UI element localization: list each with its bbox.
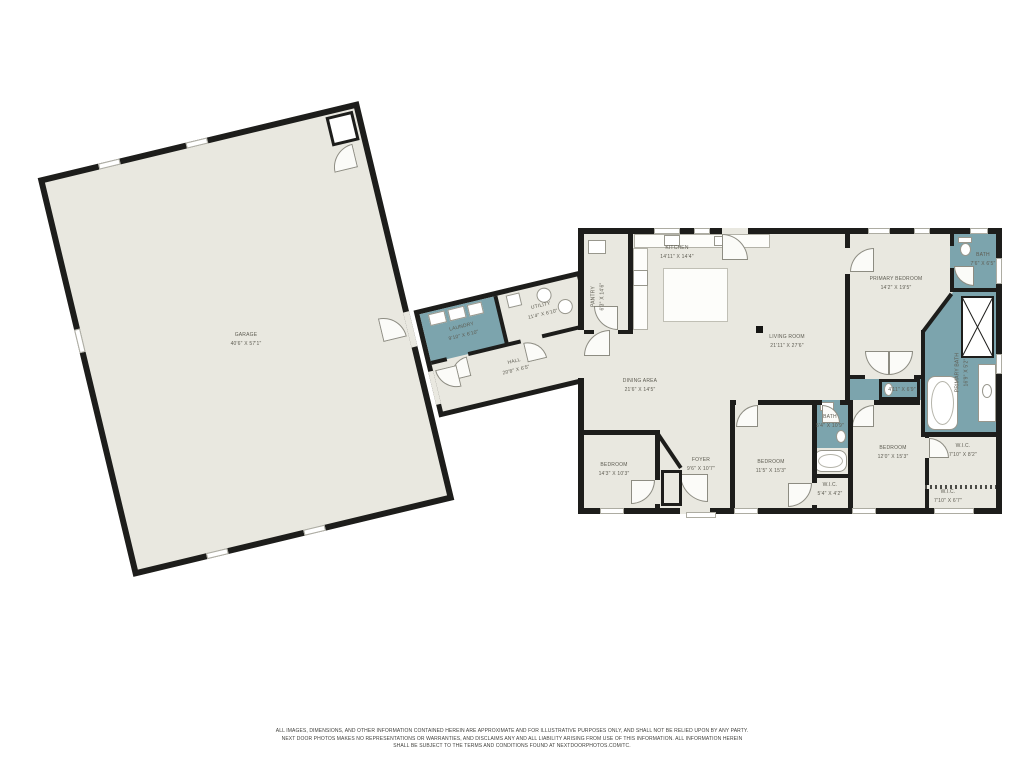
room-name: KITCHEN	[637, 244, 717, 253]
window	[914, 228, 930, 234]
garage-corner-alcove	[325, 111, 359, 147]
door-arc	[736, 405, 758, 427]
room-dims: 4'11" X 6'9"	[872, 386, 932, 395]
room-label-wic-primary: W.I.C. 7'10" X 8'2"	[923, 442, 1003, 459]
room-label-wic-small: W.I.C. 7'10" X 6'7"	[908, 488, 988, 505]
door-arc	[378, 313, 407, 342]
door-arc	[329, 144, 358, 173]
room-label-garage: GARAGE 40'6" X 57'1"	[196, 331, 296, 348]
door-arc	[865, 351, 889, 375]
wall	[845, 274, 850, 400]
room-label-bath-hall: BATH 5'4" X 10'9"	[790, 413, 870, 430]
cooktop-icon	[633, 270, 648, 286]
pantry-shelf-icon	[588, 240, 606, 254]
room-name: GARAGE	[196, 331, 296, 340]
room-name: FOYER	[661, 456, 741, 465]
room-dims: 6'3" X 14'6"	[598, 262, 607, 332]
room-dims: 12'0" X 15'3"	[853, 453, 933, 462]
wall	[921, 432, 996, 437]
room-label-bedroom-right: BEDROOM 12'0" X 15'3"	[853, 444, 933, 461]
window	[694, 228, 710, 234]
room-dims: 14'11" X 14'4"	[637, 253, 717, 262]
window	[654, 228, 680, 234]
room-dims: 21'11" X 27'6"	[747, 342, 827, 351]
window	[934, 508, 974, 514]
wall	[628, 234, 633, 332]
room-name: BATH	[790, 413, 870, 422]
door-arc	[631, 480, 655, 504]
wall	[812, 505, 817, 508]
room-label-hall: HALL 20'8" X 6'5"	[484, 351, 546, 382]
foyer-closet	[661, 470, 682, 506]
room-name: LIVING ROOM	[747, 333, 827, 342]
room-name: PRIMARY BEDROOM	[846, 275, 946, 284]
door-opening	[578, 330, 584, 378]
room-name: W.I.C.	[923, 442, 1003, 451]
room-name: PRIMARY BATH	[954, 333, 963, 413]
room-label-pantry: PANTRY 6'3" X 14'6"	[590, 262, 607, 332]
wall	[812, 474, 853, 478]
room-name: BEDROOM	[574, 461, 654, 470]
room-name: DINING AREA	[600, 377, 680, 386]
toilet-icon	[836, 430, 846, 443]
disclaimer-text: ALL IMAGES, DIMENSIONS, AND OTHER INFORM…	[12, 728, 1012, 751]
wall	[950, 234, 954, 246]
window	[206, 548, 229, 559]
window	[996, 354, 1002, 374]
room-label-bedroom-middle: BEDROOM 11'5" X 15'3"	[731, 458, 811, 475]
room-dims: 21'6" X 14'5"	[600, 386, 680, 395]
window	[734, 508, 758, 514]
room-label-water-closet: 4'11" X 6'9"	[872, 386, 932, 395]
room-label-dining-area: DINING AREA 21'6" X 14'5"	[600, 377, 680, 394]
room-label-primary-bath: PRIMARY BATH 16'9" X 5'2"	[954, 333, 971, 413]
room-name: BEDROOM	[853, 444, 933, 453]
window	[186, 138, 209, 149]
door-arc	[680, 474, 708, 502]
floor-plan-canvas: LAUNDRY 9'10" X 6'10" UTILITY 11'4" X 6'…	[0, 0, 1024, 768]
window	[600, 508, 624, 514]
disclaimer-line-2: NEXT DOOR PHOTOS MAKES NO REPRESENTATION…	[12, 736, 1012, 744]
wall	[730, 400, 735, 508]
room-dims: 11'5" X 15'3"	[731, 467, 811, 476]
room-label-primary-bedroom: PRIMARY BEDROOM 14'2" X 19'5"	[846, 275, 946, 292]
door-arc	[850, 248, 874, 272]
room-name: BATH	[953, 251, 1013, 260]
room-label-bedroom-left: BEDROOM 14'3" X 10'3"	[574, 461, 654, 478]
window	[74, 328, 85, 353]
sink-icon	[982, 384, 992, 398]
wall	[874, 400, 920, 405]
wall	[584, 430, 655, 435]
door-opening	[722, 228, 748, 234]
wall	[618, 330, 633, 334]
room-dims: 14'3" X 10'3"	[574, 470, 654, 479]
room-name: W.I.C.	[790, 481, 870, 490]
room-label-living-room: LIVING ROOM 21'11" X 27'6"	[747, 333, 827, 350]
disclaimer-line-1: ALL IMAGES, DIMENSIONS, AND OTHER INFORM…	[12, 728, 1012, 736]
bathtub-basin	[818, 454, 843, 468]
room-dims: 7'6" X 6'5"	[953, 260, 1013, 269]
room-dims: 9'6" X 10'7"	[661, 465, 741, 474]
window	[98, 159, 121, 170]
room-label-foyer: FOYER 9'6" X 10'7"	[661, 456, 741, 473]
window	[303, 525, 326, 536]
wall	[921, 330, 925, 432]
wall	[655, 504, 660, 508]
bathtub-basin	[931, 381, 954, 425]
wall	[845, 234, 850, 248]
room-label-bath-top: BATH 7'6" X 6'5"	[953, 251, 1013, 268]
room-name: PANTRY	[590, 262, 599, 332]
room-dims: 40'6" X 57'1"	[196, 340, 296, 349]
fireplace-marker	[756, 326, 763, 333]
window	[852, 508, 876, 514]
wall	[950, 268, 954, 288]
room-label-wic-hall: W.I.C. 5'4" X 4'2"	[790, 481, 870, 498]
door-arc	[889, 351, 913, 375]
wall	[845, 375, 865, 379]
kitchen-island	[663, 268, 728, 322]
room-name: W.I.C.	[908, 488, 988, 497]
room-dims: 5'4" X 4'2"	[790, 490, 870, 499]
room-dims: 7'10" X 8'2"	[923, 451, 1003, 460]
window	[868, 228, 890, 234]
room-dims: 5'4" X 10'9"	[790, 422, 870, 431]
room-name: BEDROOM	[731, 458, 811, 467]
disclaimer-line-3: SHALL BE SUBJECT TO THE TERMS AND CONDIT…	[12, 743, 1012, 751]
door-arc	[435, 365, 462, 392]
room-label-kitchen: KITCHEN 14'11" X 14'4"	[637, 244, 717, 261]
room-dims: 7'10" X 6'7"	[908, 497, 988, 506]
front-step	[686, 512, 716, 518]
room-dims: 16'9" X 5'2"	[962, 333, 971, 413]
wall	[950, 288, 996, 292]
window	[970, 228, 988, 234]
room-dims: 14'2" X 19'5"	[846, 284, 946, 293]
